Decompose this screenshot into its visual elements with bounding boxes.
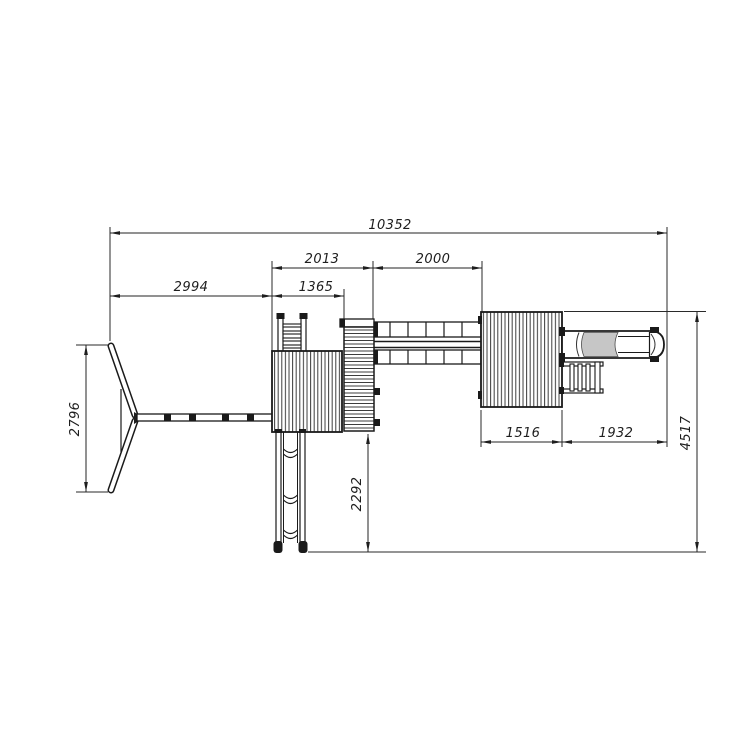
- dim-total-width: 10352: [110, 218, 667, 235]
- dim-overall-depth: 4517: [679, 312, 699, 552]
- dim-swing-section: 2994: [110, 280, 272, 298]
- swing-hanger: [247, 414, 254, 421]
- right-step-ladder: [559, 360, 603, 394]
- dim-overall-depth-label: 4517: [679, 415, 694, 450]
- dim-left-platform: 1365: [272, 280, 344, 298]
- dim-tower-section-label: 2013: [305, 252, 340, 267]
- dim-swing-depth-label: 2796: [68, 402, 83, 437]
- access-ladder: [277, 313, 308, 352]
- dim-bridge: 2000: [373, 252, 482, 270]
- dim-right-platform: 1516: [481, 426, 562, 444]
- playset-top-view-drawing: 10352 2013 2000 2994 1365 1516: [0, 0, 750, 750]
- swing-beam: [137, 414, 273, 421]
- corner-bracket: [478, 316, 482, 324]
- dim-bridge-label: 2000: [416, 252, 451, 267]
- dim-swing-depth: 2796: [68, 345, 88, 492]
- technical-drawing-page: 10352 2013 2000 2994 1365 1516: [0, 0, 750, 750]
- swing-hanger: [222, 414, 229, 421]
- dim-straight-slide: 2292: [350, 434, 370, 552]
- straight-slide: [274, 429, 308, 553]
- dim-swing-section-label: 2994: [174, 280, 209, 295]
- dim-straight-slide-label: 2292: [350, 477, 365, 512]
- anchor-bracket: [374, 388, 380, 395]
- tube-slide: [559, 327, 664, 362]
- left-platform: [272, 351, 342, 432]
- anchor-bracket: [374, 419, 380, 426]
- dim-tower-section: 2013: [272, 252, 373, 270]
- dim-tube-slide-label: 1932: [599, 426, 634, 441]
- right-platform: [478, 312, 562, 407]
- dim-left-platform-label: 1365: [299, 280, 334, 295]
- dim-total-width-label: 10352: [368, 218, 411, 233]
- dim-tube-slide: 1932: [562, 426, 667, 444]
- dim-right-platform-label: 1516: [506, 426, 541, 441]
- corner-bracket: [478, 391, 482, 399]
- bridge: [374, 322, 481, 364]
- swing-hanger: [164, 414, 171, 421]
- swing-hanger: [189, 414, 196, 421]
